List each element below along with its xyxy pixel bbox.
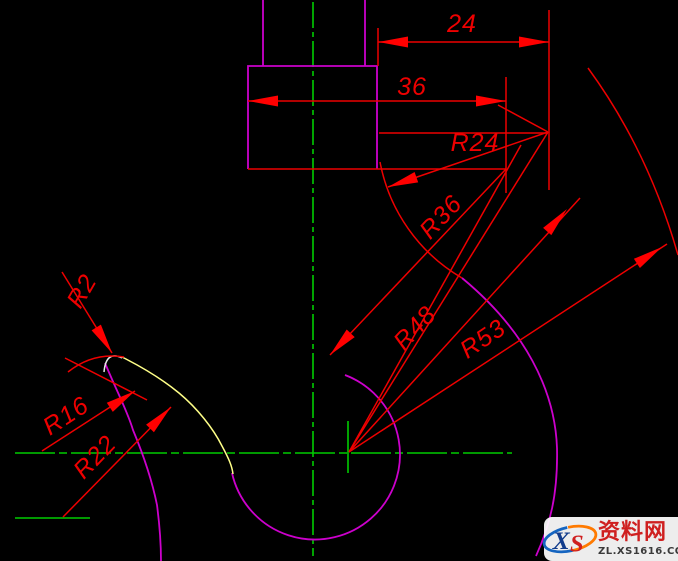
dimension-labels: 24 36 R24 R36 R48 R53 R2 R16 R22	[38, 10, 511, 484]
r2-arrow-icon	[92, 325, 112, 353]
center-link-line-r24	[349, 132, 548, 452]
dim36-arrow-left-icon	[248, 96, 278, 107]
xs-logo-icon: X S	[540, 517, 600, 561]
dim-label-r53: R53	[455, 314, 511, 365]
dim-label-r24: R24	[451, 129, 500, 157]
center-link-line-r36	[349, 145, 521, 452]
dim-label-r2: R2	[61, 269, 102, 312]
dim36-arrow-right-icon	[476, 96, 506, 107]
dim-label-r36: R36	[414, 190, 468, 245]
watermark-text-block: 资料网 ZL.XS1616.COM	[598, 521, 678, 556]
dim24-arrow-right-icon	[519, 37, 549, 48]
watermark[interactable]: X S 资料网 ZL.XS1616.COM	[544, 517, 678, 561]
cad-drawing-canvas: 24 36 R24 R36 R48 R53 R2 R16 R22	[0, 0, 678, 561]
dim-label-r48: R48	[388, 301, 442, 356]
r48-radius-line	[349, 198, 580, 452]
hook-opening-circle	[232, 375, 400, 540]
dim-label-r22: R22	[68, 430, 122, 485]
r53-radius-line	[349, 244, 667, 452]
cad-viewport: 24 36 R24 R36 R48 R53 R2 R16 R22 X S 资料网…	[0, 0, 678, 561]
logo-letter-x: X	[552, 526, 571, 555]
watermark-site-name: 资料网	[598, 521, 667, 544]
logo-letter-s: S	[570, 531, 584, 558]
watermark-url: ZL.XS1616.COM	[598, 546, 678, 557]
r53-arrow-icon	[634, 247, 662, 268]
r16-arrow-icon	[107, 391, 135, 412]
hook-profile	[105, 0, 557, 561]
r53-construction-arc	[588, 68, 678, 255]
dim-label-r16: R16	[38, 391, 94, 441]
dim24-arrow-left-icon	[378, 37, 408, 48]
dim-label-24: 24	[446, 10, 477, 38]
r24-arrow-icon	[388, 172, 418, 187]
dimension-lines	[42, 10, 678, 517]
tip-nose-arc	[104, 356, 122, 372]
tip-inner-curve	[122, 357, 233, 474]
hook-outer-right-arc	[462, 278, 557, 556]
r48-arrow-icon	[543, 209, 567, 235]
dim-label-36: 36	[397, 73, 427, 101]
